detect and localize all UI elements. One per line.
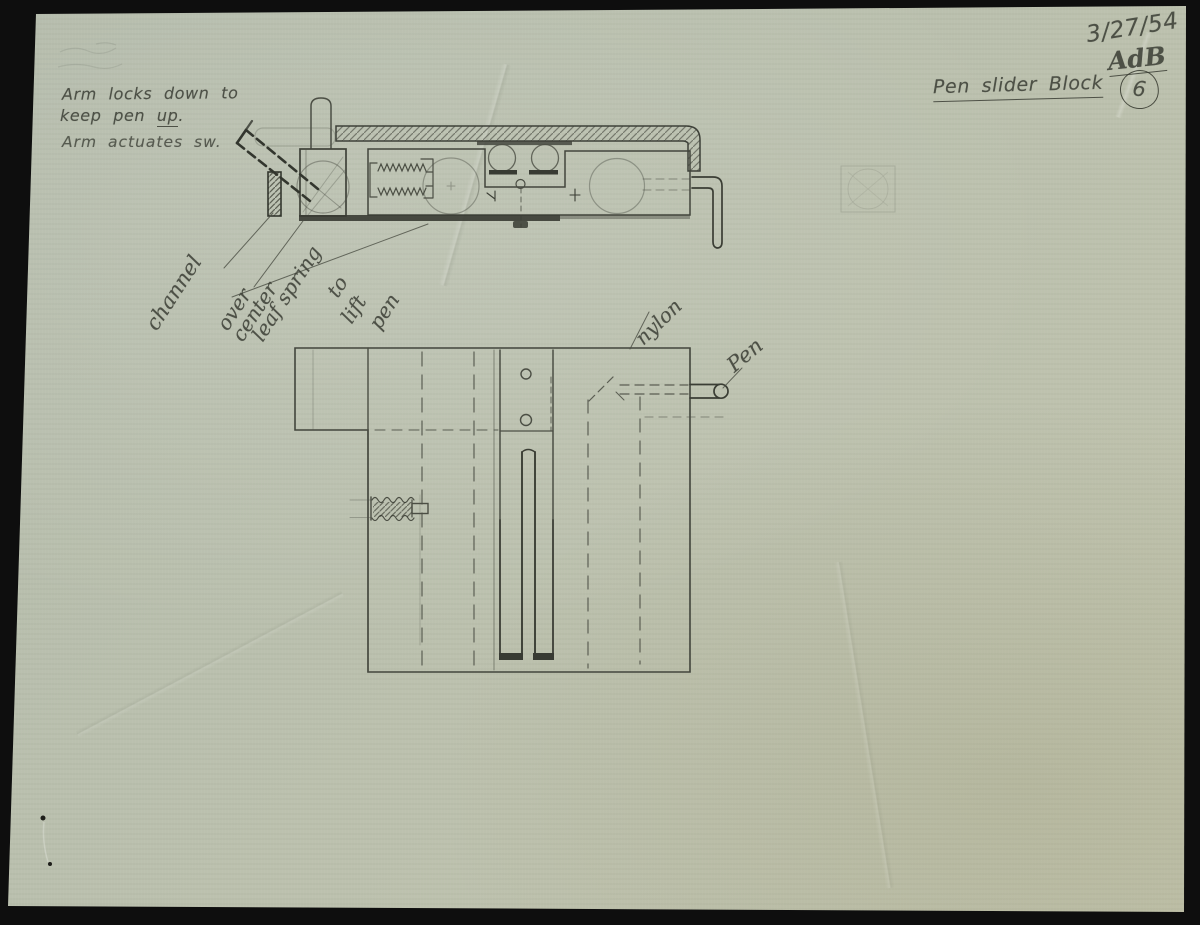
locking-arm: [237, 121, 341, 208]
ghost-arm-rest: [255, 128, 335, 146]
slider-body-outline: [368, 149, 690, 215]
note-line-2-period: .: [178, 106, 184, 125]
paper-speck: [41, 816, 46, 821]
paper-speck: [48, 862, 52, 866]
pen-rod-plan: [690, 384, 728, 398]
note-line-2: keep pen up.: [60, 108, 184, 125]
leaf-spring-bar-light: [560, 216, 690, 220]
note-up-underlined: up: [157, 106, 179, 127]
pivot-post: [311, 98, 331, 148]
nylon-spring-plan: [350, 497, 428, 521]
paper-scuff: [44, 822, 49, 862]
channel-strip: [268, 172, 281, 216]
guide-wheel: [532, 145, 559, 172]
guide-wheel: [489, 145, 516, 172]
block-outline: [295, 348, 690, 672]
scanned-page: 3/27/54 AdB 6 Pen slider Block Arm locks…: [0, 0, 1200, 925]
center-mark: [570, 189, 580, 201]
paper-sheet: 3/27/54 AdB 6 Pen slider Block Arm locks…: [0, 0, 1200, 925]
center-mark: [487, 191, 495, 201]
pen-rod-elevation: [692, 177, 722, 248]
erased-text: [58, 43, 122, 69]
leaf-spring-bar: [299, 215, 560, 221]
roller-right: [590, 159, 693, 214]
guide-wheels: [489, 145, 559, 175]
page-title: Pen slider Block: [933, 74, 1104, 102]
slider-strip: [494, 350, 553, 670]
pivot-block: [297, 149, 349, 216]
sheet-number: 6: [1131, 78, 1148, 102]
slider-slot: [499, 450, 554, 661]
ghost-marks: [41, 43, 896, 866]
cover-under-plate: [477, 142, 572, 146]
screw-hole: [521, 415, 532, 426]
hidden-lines-right: [588, 376, 728, 668]
erased-square: [841, 166, 895, 212]
note-line-1: Arm locks down to: [62, 85, 239, 103]
screw-hole: [521, 369, 531, 379]
note-line-3: Arm actuates sw.: [62, 134, 222, 150]
plan-view: [295, 312, 742, 672]
note-line-2-text: keep pen: [60, 106, 145, 125]
